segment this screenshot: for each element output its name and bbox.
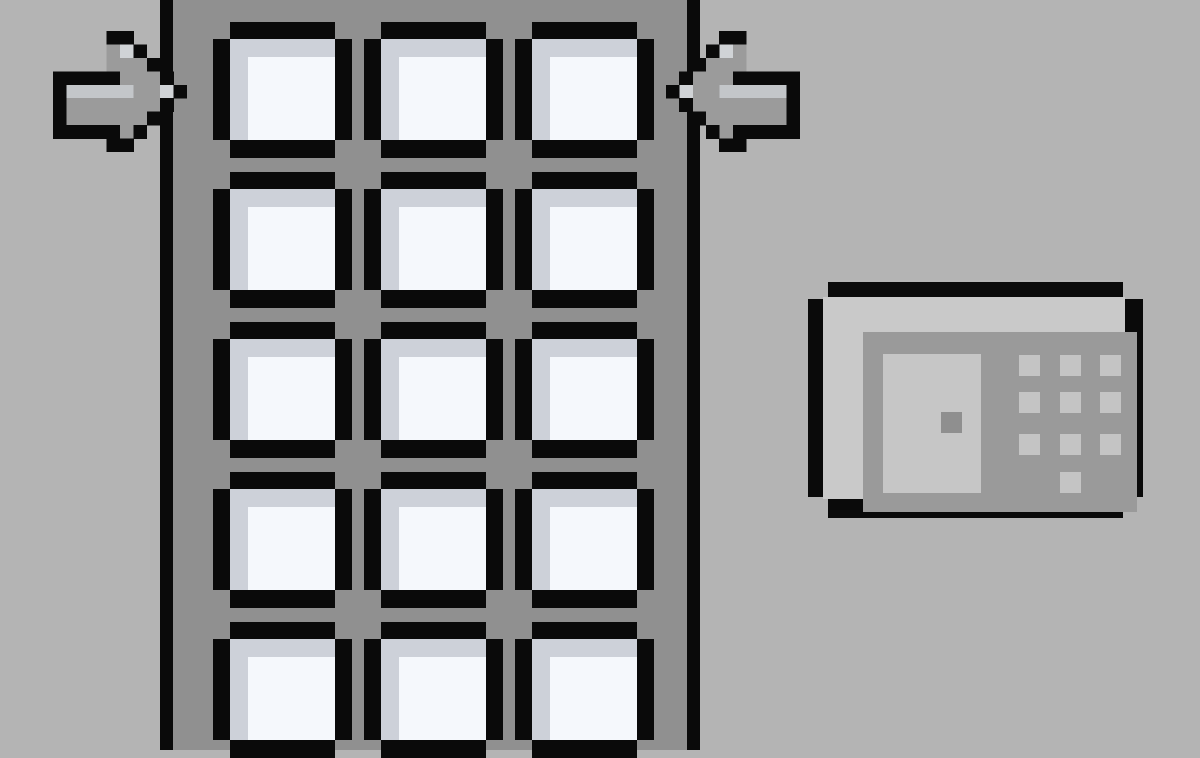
window-frame-left <box>515 639 532 740</box>
window-pane <box>381 39 486 140</box>
window-glass <box>248 357 335 440</box>
keypad-face <box>863 332 1137 512</box>
pixel-arrow-right-icon[interactable] <box>53 31 187 152</box>
window-frame-bottom <box>532 590 637 608</box>
window-frame-right <box>486 339 503 440</box>
window-frame-left <box>213 39 230 140</box>
window-pane <box>532 339 637 440</box>
window-frame-right <box>335 189 352 290</box>
window-frame-top <box>532 622 637 639</box>
window-frame-right <box>637 489 654 590</box>
window-frame-left <box>213 189 230 290</box>
window-pane <box>532 189 637 290</box>
window-pane <box>532 39 637 140</box>
window-pane <box>230 189 335 290</box>
window <box>515 22 654 158</box>
window-frame-bottom <box>381 590 486 608</box>
keypad-display <box>883 354 981 493</box>
window-frame-top <box>381 622 486 639</box>
window-frame-right <box>637 339 654 440</box>
window-glass <box>399 657 486 740</box>
window-frame-bottom <box>230 290 335 308</box>
window-frame-bottom <box>230 140 335 158</box>
window-frame-bottom <box>532 290 637 308</box>
window-frame-top <box>230 472 335 489</box>
keypad-button[interactable] <box>1019 434 1040 455</box>
window-pane <box>532 489 637 590</box>
window-glass <box>399 357 486 440</box>
keypad-button[interactable] <box>1019 355 1040 376</box>
window-frame-top <box>381 22 486 39</box>
window <box>213 622 352 758</box>
window <box>515 622 654 758</box>
window-frame-left <box>515 489 532 590</box>
window-pane <box>532 639 637 740</box>
window-frame-top <box>532 472 637 489</box>
keypad-button[interactable] <box>1100 392 1121 413</box>
pixel-arrow-left-icon[interactable] <box>666 31 800 152</box>
window-frame-top <box>532 172 637 189</box>
window-frame-left <box>364 339 381 440</box>
window-glass <box>399 57 486 140</box>
window-frame-bottom <box>230 740 335 758</box>
keypad-bezel <box>823 297 1125 499</box>
keypad-button[interactable] <box>1060 472 1081 493</box>
window-frame-right <box>486 189 503 290</box>
window-glass <box>399 207 486 290</box>
keypad-button[interactable] <box>1019 392 1040 413</box>
keypad-button[interactable] <box>1060 392 1081 413</box>
scene <box>0 0 1200 750</box>
window-pane <box>230 639 335 740</box>
window-frame-top <box>532 22 637 39</box>
window-glass <box>248 57 335 140</box>
window-frame-top <box>230 322 335 339</box>
window-frame-bottom <box>381 140 486 158</box>
keypad-button[interactable] <box>1100 434 1121 455</box>
window <box>213 172 352 308</box>
window-glass <box>248 507 335 590</box>
keypad-button[interactable] <box>1060 355 1081 376</box>
window-glass <box>399 507 486 590</box>
window-frame-right <box>637 189 654 290</box>
window-frame-top <box>381 322 486 339</box>
window-frame-bottom <box>230 590 335 608</box>
window-frame-right <box>637 39 654 140</box>
window-frame-left <box>364 39 381 140</box>
window <box>515 322 654 458</box>
window-frame-left <box>213 339 230 440</box>
window-pane <box>230 39 335 140</box>
window <box>213 322 352 458</box>
keypad-display-cursor <box>941 412 962 433</box>
window-frame-bottom <box>532 140 637 158</box>
window-frame-top <box>381 172 486 189</box>
window-glass <box>550 357 637 440</box>
window-pane <box>381 339 486 440</box>
window-frame-left <box>213 639 230 740</box>
window <box>364 22 503 158</box>
window-glass <box>248 207 335 290</box>
window-frame-right <box>486 39 503 140</box>
window-frame-right <box>637 639 654 740</box>
window-frame-left <box>364 189 381 290</box>
keypad-button[interactable] <box>1100 355 1121 376</box>
window-frame-bottom <box>230 440 335 458</box>
keypad-frame-top <box>828 282 1123 297</box>
window-pane <box>230 339 335 440</box>
window-frame-right <box>335 639 352 740</box>
window <box>515 172 654 308</box>
window-glass <box>550 507 637 590</box>
window-frame-top <box>230 172 335 189</box>
window <box>213 472 352 608</box>
window <box>364 472 503 608</box>
window-frame-right <box>486 639 503 740</box>
window-frame-right <box>335 489 352 590</box>
window <box>364 322 503 458</box>
window-glass <box>550 657 637 740</box>
window-frame-left <box>213 489 230 590</box>
window-frame-left <box>515 339 532 440</box>
window-pane <box>381 189 486 290</box>
window-frame-bottom <box>381 440 486 458</box>
window-frame-left <box>515 189 532 290</box>
window-frame-top <box>230 622 335 639</box>
window-glass <box>550 207 637 290</box>
window <box>364 172 503 308</box>
window-frame-left <box>364 489 381 590</box>
window-frame-right <box>335 39 352 140</box>
window-glass <box>550 57 637 140</box>
keypad-button[interactable] <box>1060 434 1081 455</box>
window-frame-top <box>532 322 637 339</box>
window <box>515 472 654 608</box>
window-frame-bottom <box>381 290 486 308</box>
building-door[interactable] <box>160 0 700 750</box>
window <box>213 22 352 158</box>
window-frame-bottom <box>381 740 486 758</box>
window-pane <box>230 489 335 590</box>
keypad-frame-left <box>808 299 823 497</box>
window-frame-left <box>515 39 532 140</box>
window-frame-top <box>381 472 486 489</box>
window-pane <box>381 639 486 740</box>
window-frame-bottom <box>532 740 637 758</box>
window-pane <box>381 489 486 590</box>
window-frame-right <box>335 339 352 440</box>
window-frame-top <box>230 22 335 39</box>
window-frame-right <box>486 489 503 590</box>
window <box>364 622 503 758</box>
keypad-panel[interactable] <box>808 282 1143 518</box>
window-frame-bottom <box>532 440 637 458</box>
window-frame-left <box>364 639 381 740</box>
window-glass <box>248 657 335 740</box>
